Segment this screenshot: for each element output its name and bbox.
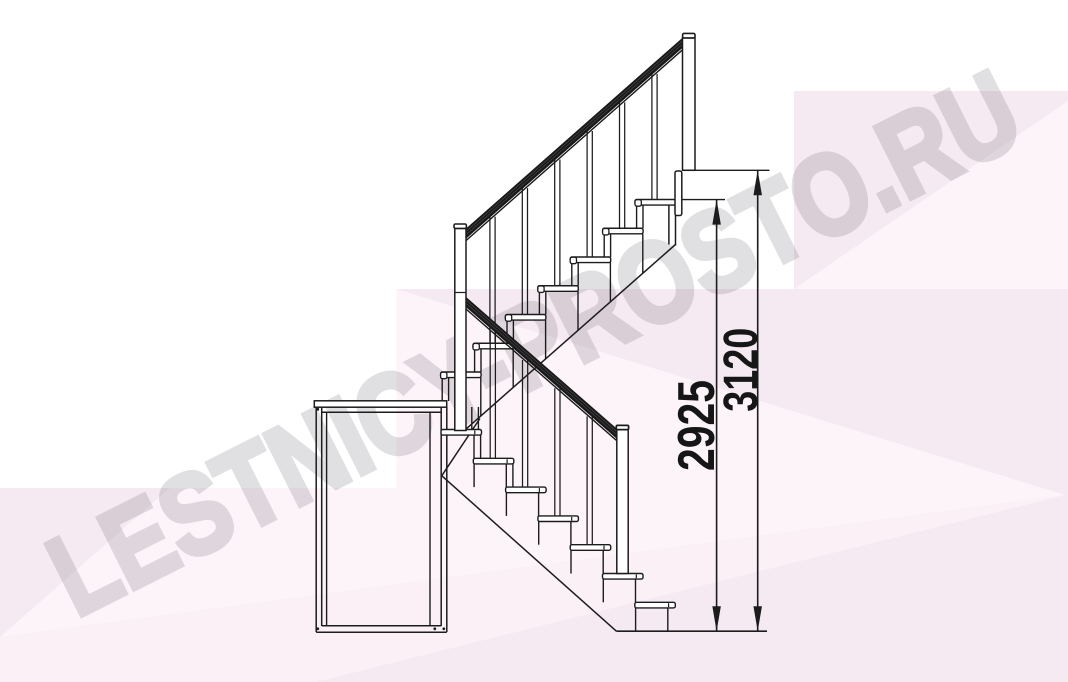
svg-text:3120: 3120: [715, 328, 768, 412]
